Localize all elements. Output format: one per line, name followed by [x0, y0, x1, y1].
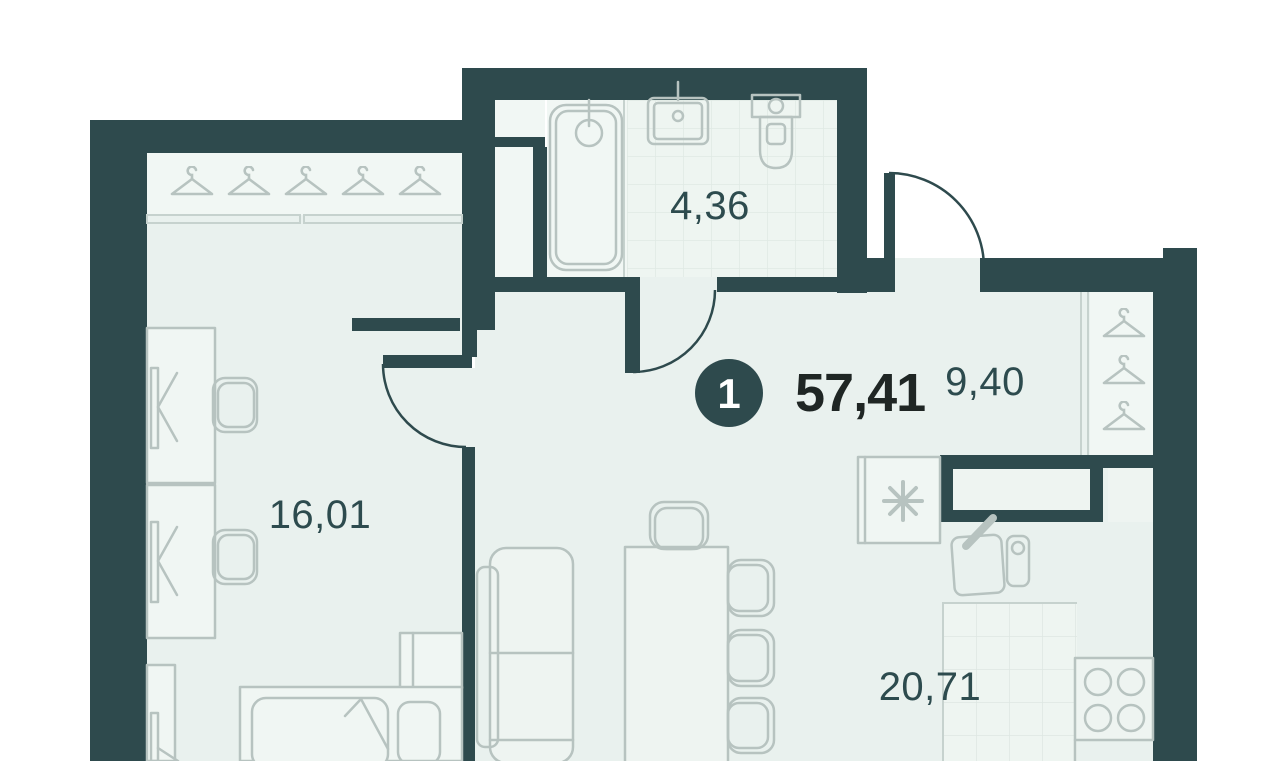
snowflake-asterisk-icon	[884, 482, 922, 520]
kitchen-counter-inset	[953, 469, 1090, 510]
desk-1	[147, 328, 215, 483]
kitchen-area-label: 20,71	[879, 665, 982, 709]
wall-right-corner	[1163, 248, 1197, 292]
wall-top-left-outer	[90, 120, 462, 153]
wall-hall-bottom-stub	[1103, 455, 1153, 468]
floor-plan-canvas: 4,36 9,40 16,01 20,71 1 57,41	[0, 0, 1280, 761]
bathroom-shaft	[495, 147, 533, 277]
unit-number: 1	[717, 370, 740, 417]
kitchen-counter-side-unit	[1108, 468, 1153, 522]
wall-hall-top-b	[980, 258, 1163, 292]
bedroom-area-label: 16,01	[269, 493, 372, 537]
wall-shaft-side	[533, 147, 547, 277]
wall-bathroom-bottom-left	[495, 277, 640, 292]
bed-icon	[240, 687, 462, 761]
unit-badge: 1	[695, 359, 763, 427]
floor-plan: 4,36 9,40 16,01 20,71 1 57,41	[0, 0, 1280, 761]
wall-bedroom-hall-mid	[462, 330, 477, 357]
desk-3	[147, 665, 178, 761]
wall-right-outer	[1153, 292, 1197, 761]
entrance-door-arc	[889, 173, 984, 268]
entrance-threshold	[895, 258, 980, 292]
wall-left-outer	[90, 120, 147, 761]
bathroom-area-label: 4,36	[670, 184, 750, 228]
desk-2	[147, 485, 215, 638]
wall-bedroom-hall-lower	[462, 447, 475, 761]
total-area-label: 57,41	[795, 363, 925, 423]
nightstand	[400, 633, 462, 688]
bathroom-shaft-top	[495, 98, 545, 137]
bedroom-door-threshold	[462, 368, 475, 447]
sofa-icon	[477, 548, 573, 761]
bedroom-door-leaf	[383, 355, 472, 368]
bathroom-door-leaf	[625, 292, 640, 373]
bathroom-door-threshold	[640, 277, 717, 292]
wall-bathroom-left	[462, 68, 495, 292]
entrance-door-leaf	[884, 173, 895, 270]
fridge	[858, 457, 940, 543]
wall-bathroom-bottom-right	[717, 277, 837, 292]
wall-bathroom-top	[462, 68, 867, 100]
hallway-area-label: 9,40	[945, 360, 1025, 404]
wall-bedroom-hall-upper	[462, 292, 495, 330]
wall-shaft-top	[495, 137, 545, 147]
wall-bedroom-stub	[352, 318, 460, 331]
dining-table	[625, 547, 728, 761]
